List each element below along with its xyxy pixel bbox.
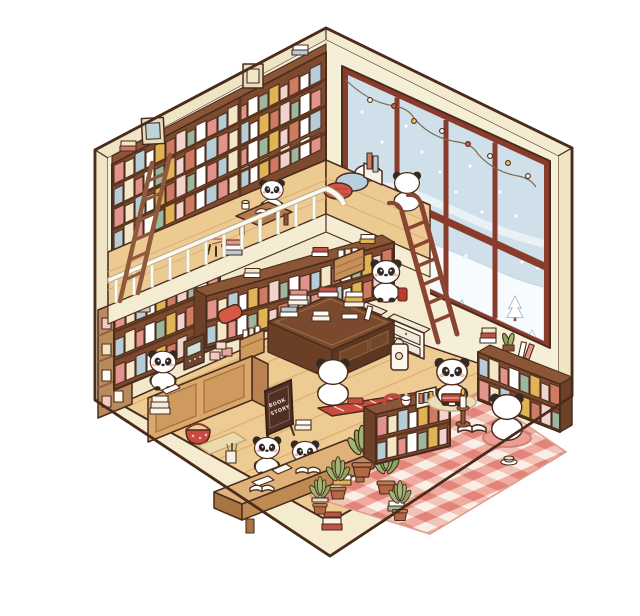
open-book-1: [250, 485, 274, 491]
paper-stack: [295, 425, 311, 430]
loft-book-stack: [224, 240, 242, 255]
right-wall-outer-side: [558, 148, 572, 396]
white-book-stack: [150, 396, 170, 414]
open-book-2: [296, 467, 320, 473]
red-book-floor: [348, 398, 363, 404]
candle-flame: [461, 389, 465, 396]
desk-leg-1: [246, 519, 254, 533]
picture-frame-1: [141, 117, 164, 144]
red-bag: [398, 288, 407, 301]
illustration-canvas: BOOK STORY: [0, 0, 640, 616]
mug: [242, 200, 249, 209]
panda-bookstore-illustration: BOOK STORY: [0, 0, 640, 616]
